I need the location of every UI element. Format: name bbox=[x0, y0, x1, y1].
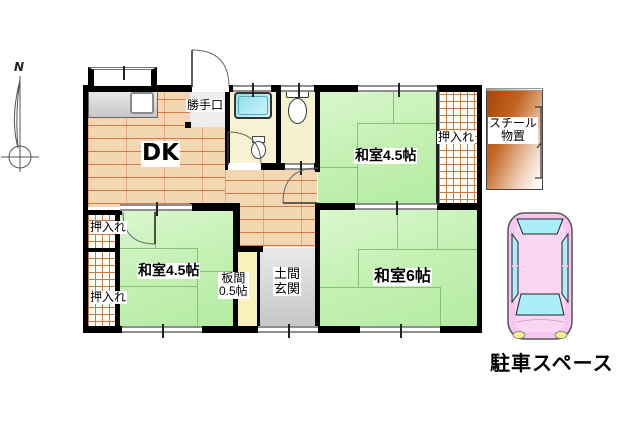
wall bbox=[436, 88, 439, 206]
tatami-line bbox=[197, 248, 198, 326]
tatami-line bbox=[119, 286, 197, 287]
shed-label-line: スチール bbox=[489, 116, 537, 130]
room-label-dk: DK bbox=[141, 141, 180, 167]
bay-window bbox=[88, 67, 157, 86]
room-closet-w-lower bbox=[88, 252, 115, 326]
itanoma-label-line: 0.5帖 bbox=[219, 284, 248, 298]
tatami-line bbox=[357, 123, 358, 207]
genkan-label-line: 土間 bbox=[274, 266, 300, 281]
itanoma-label-line: 板間 bbox=[221, 271, 245, 285]
wall-end-marker bbox=[185, 122, 191, 128]
wall bbox=[315, 86, 320, 172]
door-opening bbox=[192, 85, 229, 92]
shed-label-line: 物置 bbox=[501, 129, 525, 143]
wall bbox=[315, 203, 320, 327]
window bbox=[233, 85, 271, 92]
genkan-label-line: 玄関 bbox=[274, 281, 300, 296]
room-label-washitsu-sw: 和室4.5帖 bbox=[137, 263, 200, 279]
room-label-back-door: 勝手口 bbox=[186, 99, 224, 112]
wall bbox=[225, 86, 230, 170]
window bbox=[358, 85, 437, 92]
bathtub-inner bbox=[238, 96, 268, 115]
sliding-door bbox=[120, 204, 192, 211]
window bbox=[360, 326, 440, 333]
toilet-bowl bbox=[288, 98, 307, 124]
room-closet-ne bbox=[439, 88, 477, 206]
tatami-line bbox=[155, 211, 156, 248]
kitchen-sink bbox=[130, 92, 154, 114]
room-label-washitsu-ne: 和室4.5帖 bbox=[354, 148, 417, 164]
tatami-line bbox=[393, 88, 394, 123]
door-opening bbox=[228, 163, 261, 170]
wall bbox=[276, 86, 281, 170]
window bbox=[281, 85, 314, 92]
tatami-line bbox=[357, 123, 436, 124]
tatami-line bbox=[320, 287, 440, 288]
tatami-line bbox=[119, 248, 197, 249]
tatami-line bbox=[437, 210, 438, 249]
north-compass-icon: N bbox=[1, 60, 39, 172]
wall bbox=[86, 248, 115, 252]
sliding-door bbox=[285, 163, 314, 170]
wall bbox=[477, 85, 482, 333]
floor-plan: N DK 勝手口 和室4.5帖 押入れ スチール bbox=[0, 0, 640, 432]
room-label-closet-w-upper: 押入れ bbox=[89, 221, 127, 234]
tatami-line bbox=[397, 210, 398, 249]
compass-n-label: N bbox=[14, 60, 24, 74]
sliding-door bbox=[355, 203, 437, 210]
car-icon bbox=[503, 210, 577, 344]
entrance-sliding-door bbox=[258, 326, 318, 333]
tatami-line bbox=[318, 167, 357, 168]
room-label-closet-ne: 押入れ bbox=[437, 131, 475, 144]
tatami-line bbox=[358, 249, 359, 287]
window bbox=[122, 326, 202, 333]
room-label-closet-w-lower: 押入れ bbox=[89, 291, 127, 304]
room-label-itanoma: 板間 0.5帖 bbox=[218, 272, 249, 299]
tatami-line bbox=[440, 287, 441, 326]
room-label-doma-genkan: 土間 玄関 bbox=[273, 267, 301, 296]
washbasin-bowl bbox=[251, 141, 266, 159]
wall bbox=[83, 85, 88, 333]
room-label-washitsu-se: 和室6帖 bbox=[373, 268, 432, 286]
wall bbox=[257, 248, 260, 326]
tatami-line bbox=[358, 249, 477, 250]
parking-label: 駐車スペース bbox=[489, 353, 615, 375]
shed-label: スチール 物置 bbox=[488, 117, 538, 144]
